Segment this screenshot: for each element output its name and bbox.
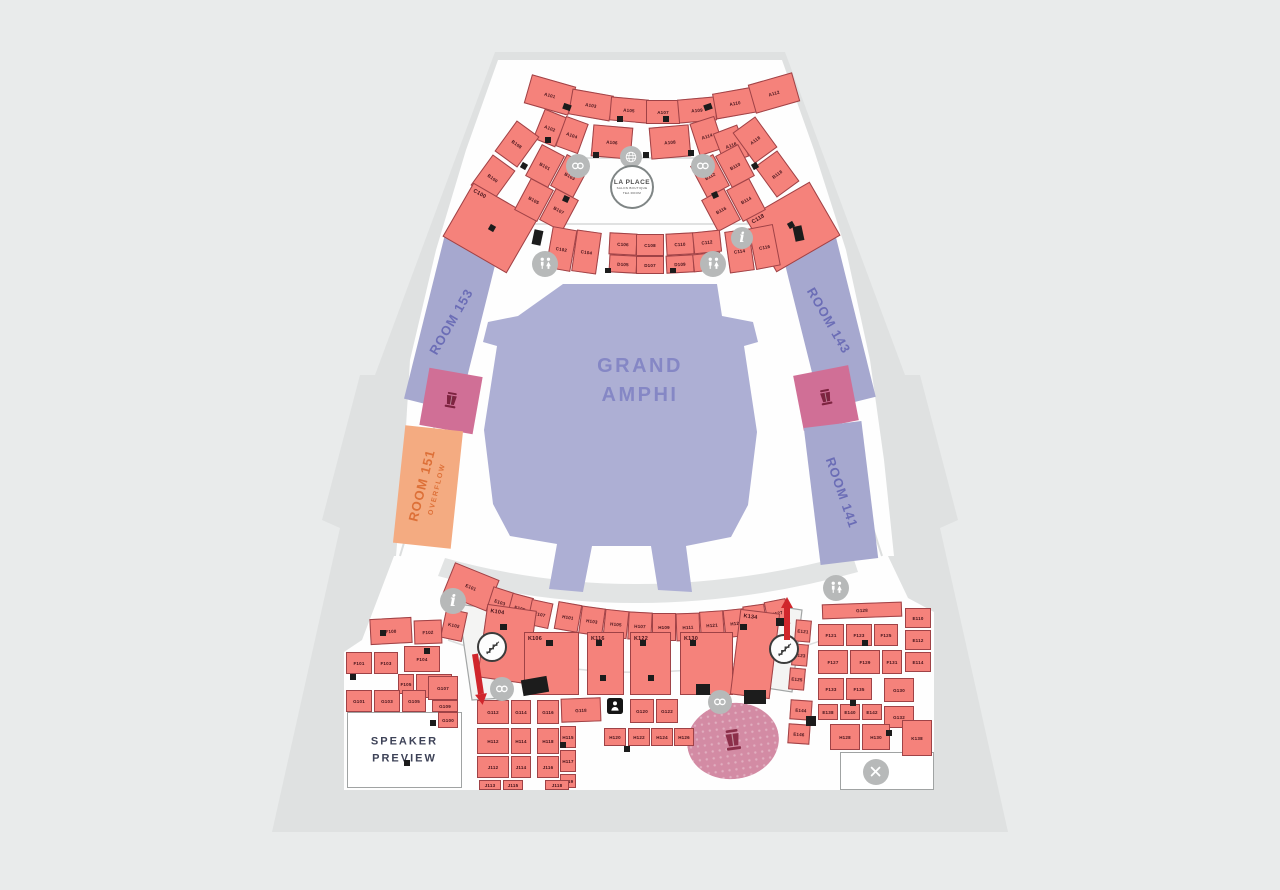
direction-arrows [0, 0, 1280, 890]
venue-floorplan-map: ROOM 153 ROOM 151OVERFLOWROOM 143 ROOM 1… [0, 0, 1280, 890]
